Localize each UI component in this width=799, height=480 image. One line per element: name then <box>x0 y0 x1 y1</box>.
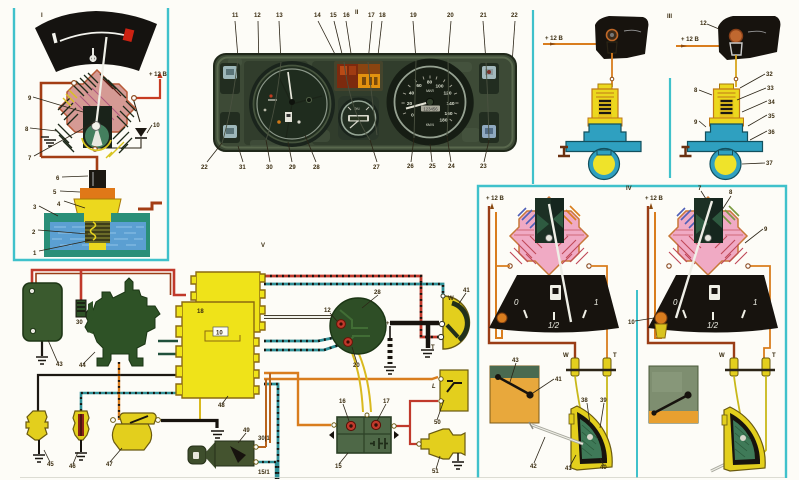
svg-text:12: 12 <box>700 21 707 27</box>
svg-text:1: 1 <box>594 298 598 307</box>
svg-text:+ 12 В: + 12 В <box>486 196 505 202</box>
svg-text:25: 25 <box>429 164 436 170</box>
svg-text:21: 21 <box>480 13 487 19</box>
svg-text:20: 20 <box>353 363 360 369</box>
svg-text:23: 23 <box>480 164 487 170</box>
svg-text:51: 51 <box>432 469 439 475</box>
svg-text:30|1: 30|1 <box>258 436 270 442</box>
svg-text:11: 11 <box>232 13 239 19</box>
svg-text:123456: 123456 <box>423 107 438 112</box>
svg-text:36: 36 <box>768 130 775 136</box>
svg-text:29: 29 <box>289 165 296 171</box>
svg-text:47: 47 <box>106 462 113 468</box>
svg-text:16: 16 <box>343 13 350 19</box>
svg-text:34: 34 <box>768 100 775 106</box>
svg-text:12: 12 <box>254 13 261 19</box>
svg-text:45: 45 <box>47 462 54 468</box>
svg-text:20: 20 <box>447 13 454 19</box>
svg-text:30: 30 <box>76 320 83 326</box>
svg-text:10: 10 <box>216 331 223 337</box>
svg-text:17: 17 <box>368 13 375 19</box>
svg-text:КМ/Ч: КМ/Ч <box>426 123 435 127</box>
svg-text:W: W <box>563 353 569 359</box>
svg-text:V: V <box>261 243 265 249</box>
svg-text:44: 44 <box>79 363 86 369</box>
svg-text:1/2: 1/2 <box>707 321 719 330</box>
svg-text:100: 100 <box>435 84 443 90</box>
svg-text:41: 41 <box>565 466 572 472</box>
svg-text:180: 180 <box>439 118 447 124</box>
svg-text:+: + <box>386 321 390 327</box>
svg-text:L: L <box>432 384 436 390</box>
svg-text:27: 27 <box>373 165 380 171</box>
svg-text:+ 12 В: + 12 В <box>645 196 664 202</box>
svg-text:1/2: 1/2 <box>548 321 560 330</box>
svg-text:15/1: 15/1 <box>258 470 270 476</box>
svg-text:16: 16 <box>339 399 346 405</box>
svg-text:32: 32 <box>766 72 773 78</box>
svg-text:41: 41 <box>555 377 562 383</box>
svg-text:40: 40 <box>409 91 415 97</box>
svg-text:50: 50 <box>434 420 441 426</box>
svg-text:II: II <box>355 10 359 16</box>
svg-text:33: 33 <box>767 86 774 92</box>
svg-text:19: 19 <box>410 13 417 19</box>
svg-text:18: 18 <box>379 13 386 19</box>
svg-text:37: 37 <box>766 161 773 167</box>
svg-text:14: 14 <box>314 13 321 19</box>
svg-text:17: 17 <box>383 399 390 405</box>
svg-text:+ 12 В: + 12 В <box>149 72 168 78</box>
svg-text:31: 31 <box>239 165 246 171</box>
svg-text:22: 22 <box>511 13 518 19</box>
svg-text:W: W <box>719 353 725 359</box>
svg-text:13: 13 <box>276 13 283 19</box>
svg-text:24: 24 <box>448 164 455 170</box>
svg-text:49: 49 <box>243 428 250 434</box>
svg-text:1: 1 <box>753 298 757 307</box>
svg-text:+ 12 В: + 12 В <box>681 37 700 43</box>
svg-text:10: 10 <box>628 320 635 326</box>
svg-text:60: 60 <box>416 83 422 89</box>
svg-text:МИЛ: МИЛ <box>426 89 434 93</box>
svg-text:120: 120 <box>443 91 451 97</box>
svg-text:28: 28 <box>313 165 320 171</box>
svg-text:43: 43 <box>56 362 63 368</box>
svg-text:0: 0 <box>673 298 678 307</box>
svg-text:18: 18 <box>197 309 204 315</box>
svg-text:80: 80 <box>427 80 433 86</box>
svg-text:0: 0 <box>411 113 414 119</box>
svg-text:T: T <box>613 353 617 359</box>
svg-text:46: 46 <box>69 464 76 470</box>
svg-text:IV: IV <box>626 186 632 192</box>
svg-text:41: 41 <box>463 288 470 294</box>
svg-text:15: 15 <box>335 464 342 470</box>
svg-text:30: 30 <box>266 165 273 171</box>
svg-text:T: T <box>772 353 776 359</box>
svg-text:T: T <box>431 345 435 351</box>
svg-text:W: W <box>448 296 454 302</box>
svg-text:0: 0 <box>514 298 519 307</box>
svg-text:160: 160 <box>444 111 452 117</box>
svg-text:10: 10 <box>153 123 160 129</box>
svg-text:26: 26 <box>407 164 414 170</box>
svg-text:III: III <box>667 14 672 20</box>
svg-text:+ 12 В: + 12 В <box>545 36 564 42</box>
svg-text:15: 15 <box>330 13 337 19</box>
svg-text:48: 48 <box>218 403 225 409</box>
svg-text:22: 22 <box>201 165 208 171</box>
svg-text:42: 42 <box>530 464 537 470</box>
svg-text:35: 35 <box>768 114 775 120</box>
